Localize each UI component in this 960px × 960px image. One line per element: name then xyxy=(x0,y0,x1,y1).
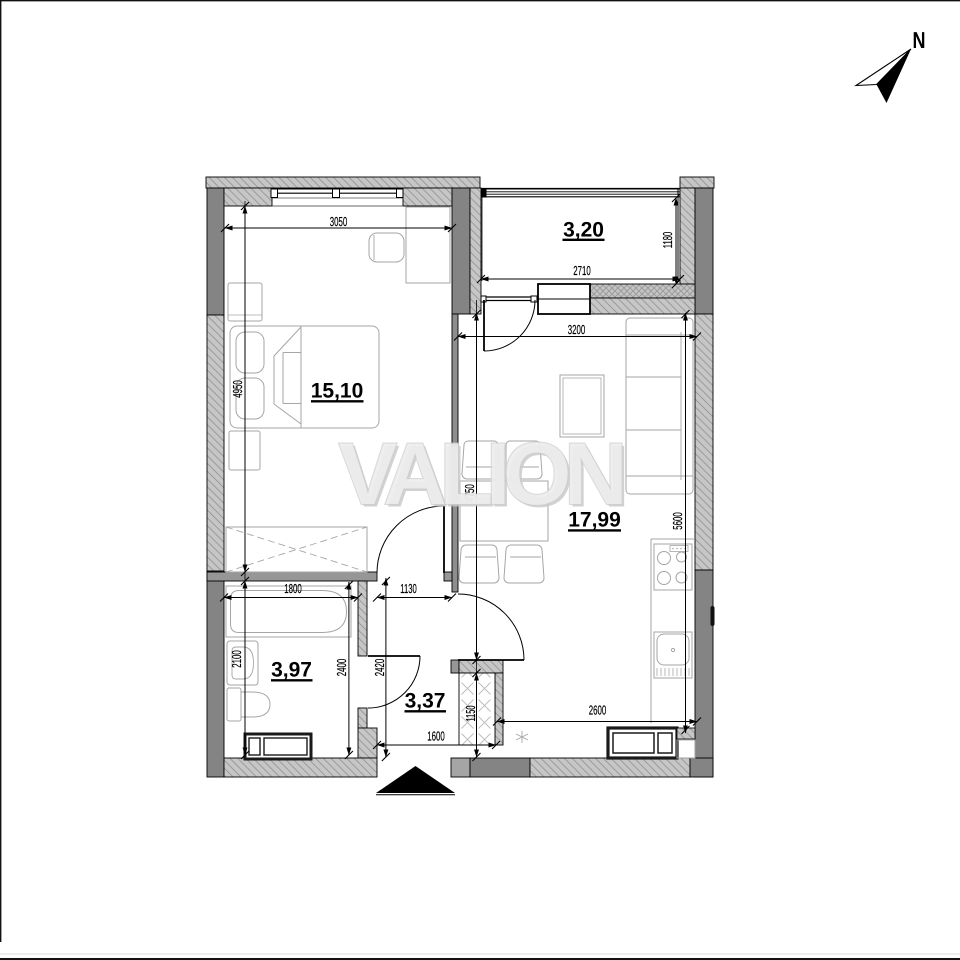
svg-text:2710: 2710 xyxy=(573,263,591,278)
svg-text:1600: 1600 xyxy=(427,729,445,744)
svg-text:15,10: 15,10 xyxy=(311,380,364,403)
svg-text:1180: 1180 xyxy=(660,232,675,249)
svg-text:2100: 2100 xyxy=(229,650,244,668)
svg-text:1130: 1130 xyxy=(400,581,417,596)
svg-text:3200: 3200 xyxy=(568,322,586,337)
svg-text:3,37: 3,37 xyxy=(405,690,446,713)
svg-text:5600: 5600 xyxy=(670,512,685,530)
svg-text:2600: 2600 xyxy=(589,703,607,718)
svg-text:2400: 2400 xyxy=(334,659,349,677)
svg-text:1150: 1150 xyxy=(463,706,478,722)
svg-text:3050: 3050 xyxy=(330,214,348,229)
svg-text:4950: 4950 xyxy=(230,380,245,398)
svg-text:1800: 1800 xyxy=(284,581,302,596)
svg-text:N: N xyxy=(913,27,926,53)
svg-text:3,97: 3,97 xyxy=(271,659,312,682)
svg-text:2420: 2420 xyxy=(372,659,387,677)
svg-text:VALION: VALION xyxy=(339,424,628,523)
svg-text:3,20: 3,20 xyxy=(563,219,604,242)
